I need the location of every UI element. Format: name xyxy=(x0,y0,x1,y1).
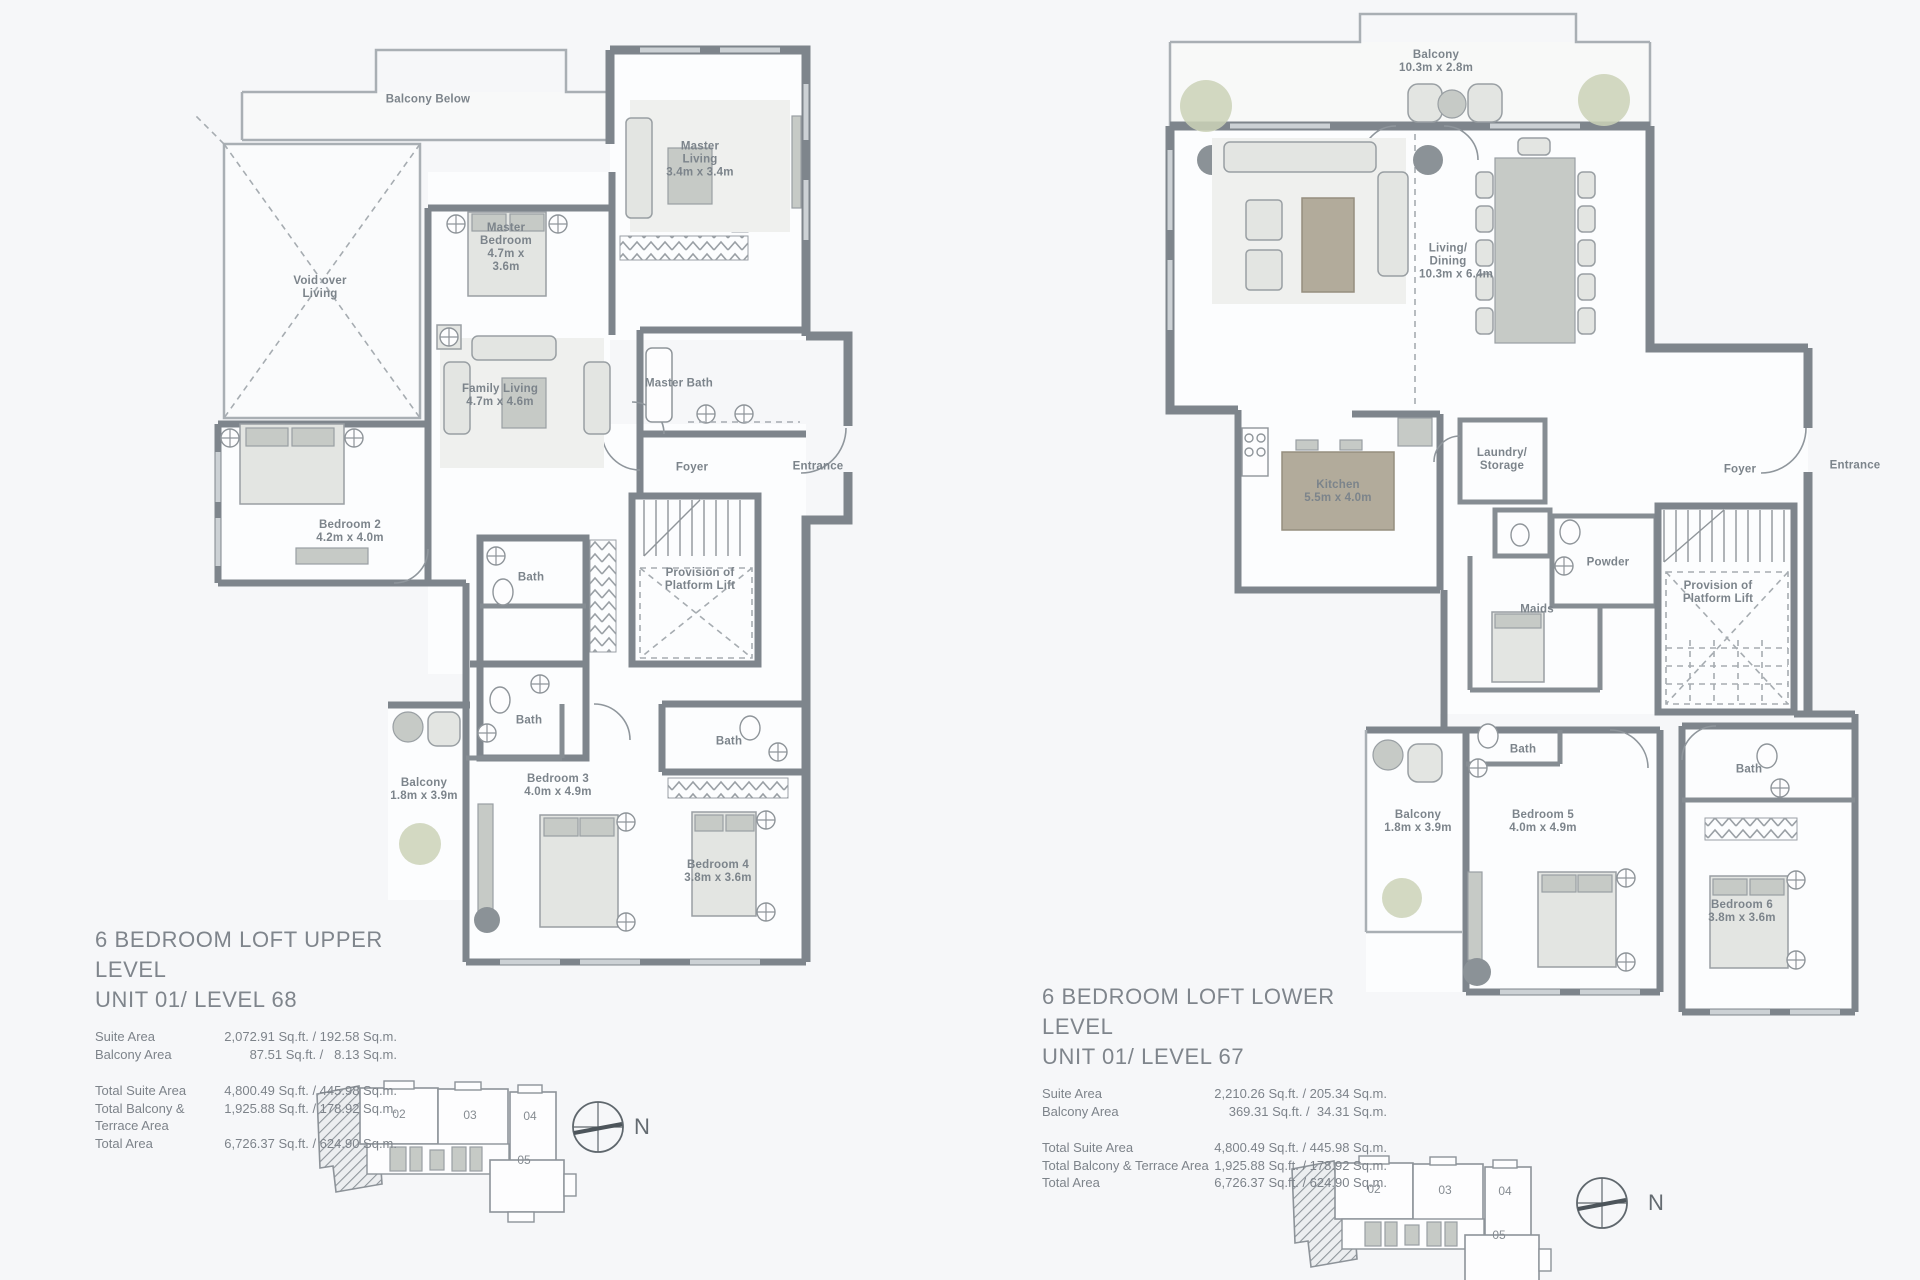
stat-row: Total Area6,726.37 Sq.ft. / 624.90 Sq.m. xyxy=(1042,1174,1387,1192)
room-label-provision-lower: Provision of Platform Lift xyxy=(1673,580,1763,606)
room-dims: 1.8m x 3.9m xyxy=(1384,822,1451,835)
room-dims: 4.7m x 3.6m xyxy=(473,248,539,274)
room-label-foyer-lower: Foyer xyxy=(1724,464,1756,477)
room-label-family-living: Family Living4.7m x 4.6m xyxy=(462,383,538,409)
room-name: Bedroom 2 xyxy=(316,519,383,532)
room-name: Laundry/ Storage xyxy=(1470,447,1534,473)
room-label-entrance: Entrance xyxy=(793,461,844,474)
room-label-foyer: Foyer xyxy=(676,462,708,475)
room-label-bedroom3: Bedroom 34.0m x 4.9m xyxy=(524,773,591,799)
stat-row: Total Area6,726.37 Sq.ft. / 624.90 Sq.m. xyxy=(95,1135,397,1153)
stat-row: Suite Area2,072.91 Sq.ft. / 192.58 Sq.m. xyxy=(95,1028,397,1046)
plan-title: 6 BEDROOM LOFT UPPER LEVEL xyxy=(95,925,397,985)
room-label-balcony-below: Balcony Below xyxy=(386,94,470,107)
stat-row: Total Suite Area4,800.49 Sq.ft. / 445.98… xyxy=(1042,1139,1387,1157)
lower-wardrobe xyxy=(1705,818,1797,840)
area-stats: Suite Area2,072.91 Sq.ft. / 192.58 Sq.m.… xyxy=(95,1028,397,1152)
room-dims: 10.3m x 6.4m xyxy=(1419,269,1477,282)
room-name: Bedroom 4 xyxy=(684,859,751,872)
room-label-bedroom6: Bedroom 63.8m x 3.6m xyxy=(1708,899,1775,925)
stat-row: Balcony Area369.31 Sq.ft. / 34.31 Sq.m. xyxy=(1042,1103,1387,1121)
room-label-bath-c: Bath xyxy=(716,736,742,749)
room-dims: 5.5m x 4.0m xyxy=(1304,492,1371,505)
keyplan-unit-02: 02 xyxy=(1367,1182,1380,1196)
room-label-laundry: Laundry/ Storage xyxy=(1470,447,1534,473)
room-label-provision: Provision of Platform Lift xyxy=(655,567,745,593)
room-name: Master Living xyxy=(662,141,738,167)
room-name: Bath xyxy=(518,572,544,585)
room-name: Living/ Dining xyxy=(1419,243,1477,269)
room-label-entrance-lower: Entrance xyxy=(1830,460,1881,473)
room-label-living-dining: Living/ Dining10.3m x 6.4m xyxy=(1419,243,1477,282)
lower-plan xyxy=(1170,14,1855,1012)
keyplan-unit-05: 05 xyxy=(1492,1228,1505,1242)
room-name: Provision of Platform Lift xyxy=(1673,580,1763,606)
keyplan-unit-05: 05 xyxy=(517,1153,530,1167)
floorplan-sheet: Balcony Below Master Living3.4m x 3.4m M… xyxy=(0,0,1920,1280)
room-name: Bath xyxy=(516,715,542,728)
upper-title-block: 6 BEDROOM LOFT UPPER LEVEL UNIT 01/ LEVE… xyxy=(95,925,397,1152)
stat-row: Total Suite Area4,800.49 Sq.ft. / 445.98… xyxy=(95,1082,397,1100)
room-label-void: Void over Living xyxy=(284,275,356,301)
room-name: Foyer xyxy=(676,462,708,475)
room-dims: 3.8m x 3.6m xyxy=(684,872,751,885)
plan-unit: UNIT 01/ LEVEL 67 xyxy=(1042,1042,1387,1072)
room-dims: 3.8m x 3.6m xyxy=(1708,912,1775,925)
room-name: Balcony xyxy=(390,777,457,790)
room-label-balcony: Balcony1.8m x 3.9m xyxy=(390,777,457,803)
lower-title-block: 6 BEDROOM LOFT LOWER LEVEL UNIT 01/ LEVE… xyxy=(1042,982,1387,1192)
room-name: Foyer xyxy=(1724,464,1756,477)
room-dims: 4.0m x 4.9m xyxy=(1509,822,1576,835)
stat-row: Total Balcony & Terrace Area1,925.88 Sq.… xyxy=(95,1100,397,1135)
stat-row: Balcony Area87.51 Sq.ft. / 8.13 Sq.m. xyxy=(95,1046,397,1064)
room-label-maids: Maids xyxy=(1520,604,1554,617)
room-name: Balcony xyxy=(1399,49,1473,62)
plan-unit: UNIT 01/ LEVEL 68 xyxy=(95,985,397,1015)
room-label-balcony-lower: Balcony1.8m x 3.9m xyxy=(1384,809,1451,835)
room-name: Bedroom 3 xyxy=(524,773,591,786)
room-name: Maids xyxy=(1520,604,1554,617)
room-label-kitchen: Kitchen5.5m x 4.0m xyxy=(1304,479,1371,505)
area-stats: Suite Area2,210.26 Sq.ft. / 205.34 Sq.m.… xyxy=(1042,1085,1387,1192)
plan-title: 6 BEDROOM LOFT LOWER LEVEL xyxy=(1042,982,1387,1042)
room-name: Entrance xyxy=(1830,460,1881,473)
room-name: Kitchen xyxy=(1304,479,1371,492)
room-name: Powder xyxy=(1587,557,1630,570)
room-dims: 10.3m x 2.8m xyxy=(1399,62,1473,75)
room-label-master-bath: Master Bath xyxy=(645,378,713,391)
keyplan-unit-04: 04 xyxy=(1498,1184,1511,1198)
room-label-bath-lower-a: Bath xyxy=(1510,744,1536,757)
room-dims: 4.7m x 4.6m xyxy=(462,396,538,409)
room-name: Entrance xyxy=(793,461,844,474)
room-dims: 1.8m x 3.9m xyxy=(390,790,457,803)
north-label: N xyxy=(634,1114,650,1140)
room-label-balcony-top: Balcony10.3m x 2.8m xyxy=(1399,49,1473,75)
room-label-bedroom4: Bedroom 43.8m x 3.6m xyxy=(684,859,751,885)
room-name: Provision of Platform Lift xyxy=(655,567,745,593)
room-label-bath-b: Bath xyxy=(516,715,542,728)
room-name: Family Living xyxy=(462,383,538,396)
room-label-bath-lower-b: Bath xyxy=(1736,764,1762,777)
room-dims: 3.4m x 3.4m xyxy=(662,167,738,180)
keyplan-unit-03: 03 xyxy=(463,1108,476,1122)
upper-plan xyxy=(196,50,848,962)
room-label-master-living: Master Living3.4m x 3.4m xyxy=(662,141,738,180)
room-dims: 4.2m x 4.0m xyxy=(316,532,383,545)
room-label-master-bedroom: Master Bedroom4.7m x 3.6m xyxy=(473,222,539,274)
keyplan-unit-04: 04 xyxy=(523,1109,536,1123)
stat-row: Suite Area2,210.26 Sq.ft. / 205.34 Sq.m. xyxy=(1042,1085,1387,1103)
room-name: Bath xyxy=(716,736,742,749)
room-name: Balcony Below xyxy=(386,94,470,107)
room-label-powder: Powder xyxy=(1587,557,1630,570)
room-name: Bedroom 6 xyxy=(1708,899,1775,912)
compass-upper xyxy=(573,1102,623,1152)
keyplan-unit-03: 03 xyxy=(1438,1183,1451,1197)
room-label-bath-a: Bath xyxy=(518,572,544,585)
room-name: Bath xyxy=(1510,744,1536,757)
room-name: Bedroom 5 xyxy=(1509,809,1576,822)
room-name: Master Bedroom xyxy=(473,222,539,248)
room-label-bedroom2: Bedroom 24.2m x 4.0m xyxy=(316,519,383,545)
room-dims: 4.0m x 4.9m xyxy=(524,786,591,799)
room-name: Master Bath xyxy=(645,378,713,391)
room-name: Balcony xyxy=(1384,809,1451,822)
room-label-bedroom5: Bedroom 54.0m x 4.9m xyxy=(1509,809,1576,835)
keyplan-unit-02: 02 xyxy=(392,1107,405,1121)
room-name: Bath xyxy=(1736,764,1762,777)
compass-lower xyxy=(1577,1178,1627,1228)
stat-row: Total Balcony & Terrace Area1,925.88 Sq.… xyxy=(1042,1157,1387,1175)
north-label: N xyxy=(1648,1190,1664,1216)
room-name: Void over Living xyxy=(284,275,356,301)
